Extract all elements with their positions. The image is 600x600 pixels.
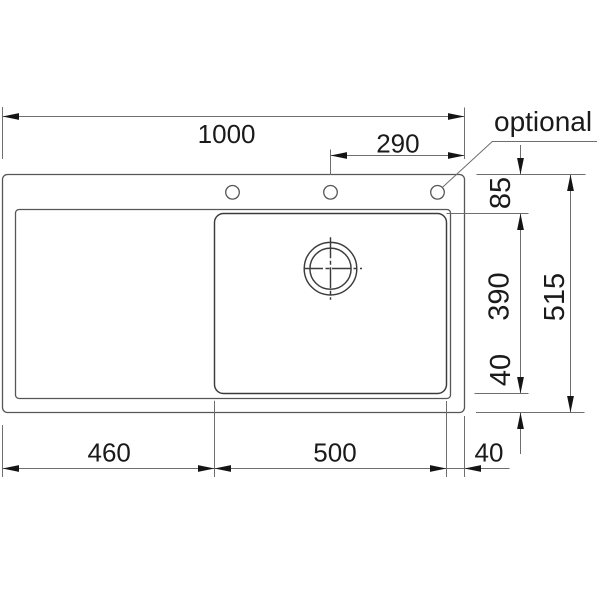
svg-text:460: 460 — [88, 438, 131, 468]
svg-text:290: 290 — [376, 129, 419, 159]
svg-text:1000: 1000 — [198, 119, 256, 149]
svg-text:515: 515 — [539, 273, 571, 321]
svg-text:40: 40 — [485, 354, 517, 386]
svg-text:390: 390 — [484, 272, 516, 320]
svg-text:40: 40 — [475, 438, 504, 468]
svg-text:500: 500 — [313, 438, 356, 468]
svg-text:optional: optional — [494, 106, 592, 137]
svg-text:85: 85 — [485, 177, 517, 209]
